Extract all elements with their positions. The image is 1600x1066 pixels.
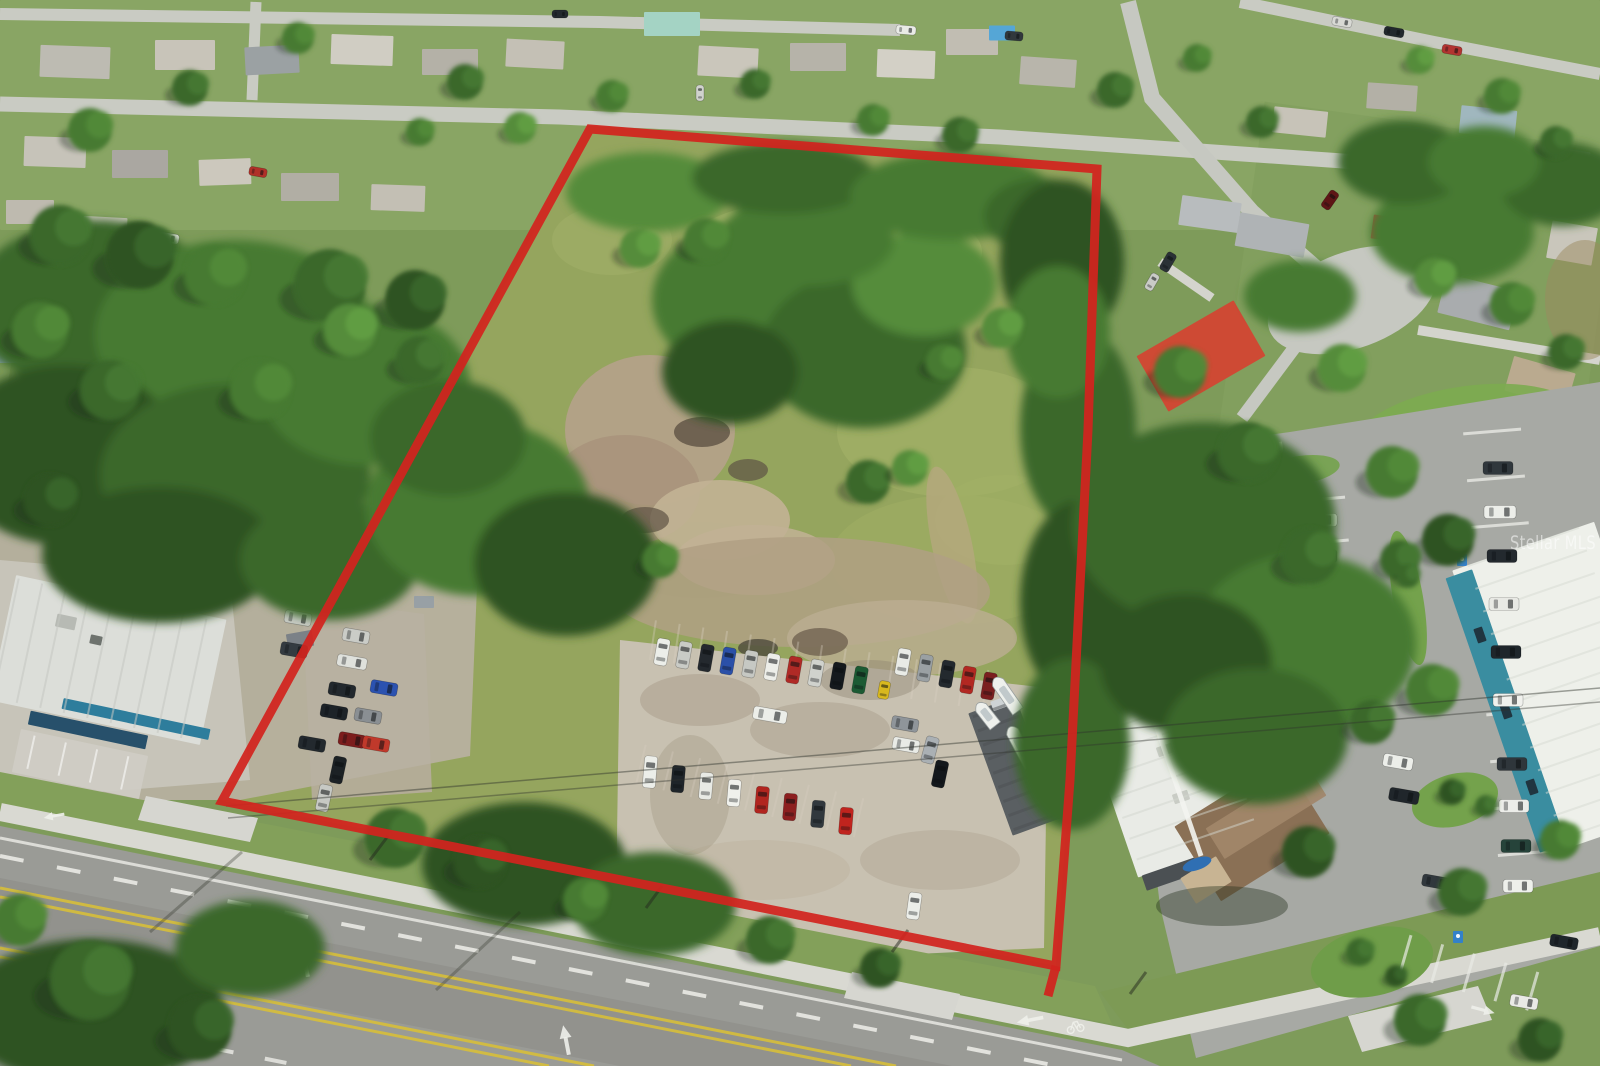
photo-rect xyxy=(155,40,215,70)
car-body xyxy=(810,800,825,828)
car-windshield xyxy=(730,785,739,790)
car xyxy=(642,755,658,788)
tree-highlight xyxy=(581,881,608,908)
photo-rect xyxy=(505,39,564,70)
tree-highlight xyxy=(1305,532,1340,567)
handicap-glyph xyxy=(1456,934,1460,938)
tree-highlight xyxy=(195,1000,235,1040)
tree-highlight xyxy=(907,452,929,474)
car xyxy=(1491,646,1521,659)
photo-blob xyxy=(1244,260,1356,332)
tree-highlight xyxy=(1394,966,1408,980)
car-rear-window xyxy=(698,96,702,98)
tree-highlight xyxy=(1416,997,1448,1029)
tree-highlight xyxy=(416,339,446,369)
photo-blob xyxy=(1156,886,1288,926)
photo-rect xyxy=(112,150,168,178)
car-windshield xyxy=(908,28,912,33)
tree-highlight xyxy=(418,120,435,137)
car-rear-window xyxy=(1492,552,1496,561)
tree-highlight xyxy=(1259,108,1279,128)
car-body xyxy=(642,755,658,788)
photo-rect xyxy=(1366,82,1418,111)
car-body xyxy=(838,807,853,835)
photo-rect xyxy=(281,173,339,201)
tree-highlight xyxy=(877,951,902,976)
photo-blob xyxy=(662,320,798,424)
tree-highlight xyxy=(941,346,963,368)
tree-highlight xyxy=(1499,80,1521,102)
car-rear-window xyxy=(1508,882,1512,891)
car-body xyxy=(1489,598,1519,611)
car-windshield xyxy=(674,771,683,776)
car-windshield xyxy=(1518,802,1523,811)
tree-highlight xyxy=(55,209,92,246)
tree-highlight xyxy=(1563,336,1585,358)
photo-rect xyxy=(39,45,110,79)
photo-rect xyxy=(1019,56,1077,88)
tree-highlight xyxy=(1406,566,1421,581)
car-windshield xyxy=(758,792,767,797)
car xyxy=(1503,880,1533,893)
car-body xyxy=(1491,646,1521,659)
car-rear-window xyxy=(1488,464,1492,473)
car-windshield xyxy=(786,799,795,804)
photo-rect xyxy=(644,12,700,36)
car-rear-window xyxy=(673,784,682,789)
tree-highlight xyxy=(462,66,484,88)
car-body xyxy=(1503,880,1533,893)
car-body xyxy=(1483,462,1513,475)
tree-highlight xyxy=(637,231,662,256)
car-windshield xyxy=(1520,842,1525,851)
tree-highlight xyxy=(346,307,378,339)
tree-highlight xyxy=(1418,48,1435,65)
tree-highlight xyxy=(1112,74,1134,96)
photo-blob xyxy=(860,830,1020,890)
car xyxy=(782,793,797,821)
car xyxy=(754,786,769,814)
car-body xyxy=(1499,800,1529,813)
photo-blob xyxy=(640,674,760,726)
car-body xyxy=(782,793,797,821)
tree-highlight xyxy=(870,106,890,126)
car-rear-window xyxy=(1496,648,1500,657)
photo-rect xyxy=(414,596,434,608)
car-rear-window xyxy=(555,12,557,16)
tree-highlight xyxy=(1195,46,1212,63)
car xyxy=(810,800,825,828)
tree-highlight xyxy=(83,945,133,995)
tree-highlight xyxy=(1508,285,1535,312)
car-windshield xyxy=(1516,760,1521,769)
tree-highlight xyxy=(410,274,447,311)
tree-highlight xyxy=(1484,796,1498,810)
car-windshield xyxy=(1016,34,1019,39)
car-rear-window xyxy=(1502,760,1506,769)
car xyxy=(1497,758,1527,771)
watermark-text: Stellar MLS xyxy=(1510,532,1596,554)
car-windshield xyxy=(1522,882,1527,891)
car-windshield xyxy=(1512,696,1517,705)
tree-highlight xyxy=(1243,426,1280,463)
tree-highlight xyxy=(702,221,729,248)
tree-highlight xyxy=(1458,871,1488,901)
car-body xyxy=(896,25,917,36)
photo-blob xyxy=(792,628,848,656)
photo-blob xyxy=(1428,126,1540,198)
car-body xyxy=(696,85,704,101)
car xyxy=(1499,800,1529,813)
car xyxy=(838,807,853,835)
car-windshield xyxy=(842,813,851,818)
tree-highlight xyxy=(105,364,142,401)
tree-highlight xyxy=(1388,449,1420,481)
tree-highlight xyxy=(1444,517,1476,549)
car xyxy=(1489,598,1519,611)
car xyxy=(1501,840,1531,853)
photo-rect xyxy=(877,49,936,79)
tree-highlight xyxy=(657,544,679,566)
scene xyxy=(0,0,1600,1066)
car-windshield xyxy=(1502,464,1507,473)
car-body xyxy=(1497,758,1527,771)
car-body xyxy=(754,786,769,814)
car xyxy=(726,779,741,807)
car-rear-window xyxy=(841,826,850,831)
tree-highlight xyxy=(1557,823,1582,848)
tree-highlight xyxy=(957,119,979,141)
car-windshield xyxy=(698,88,702,91)
car-rear-window xyxy=(757,805,766,810)
tree-highlight xyxy=(295,24,315,44)
car xyxy=(1005,31,1024,42)
car-body xyxy=(1484,506,1516,519)
car-rear-window xyxy=(1008,33,1011,38)
car-rear-window xyxy=(1504,802,1508,811)
tree-highlight xyxy=(1536,1021,1563,1048)
tree-highlight xyxy=(1428,667,1460,699)
tree-highlight xyxy=(1553,128,1573,148)
photo-rect xyxy=(199,158,252,186)
car-windshield xyxy=(1510,648,1515,657)
tree-highlight xyxy=(752,71,771,90)
car-body xyxy=(726,779,741,807)
car-rear-window xyxy=(899,27,902,32)
car-body xyxy=(1005,31,1024,42)
tree-highlight xyxy=(210,249,247,286)
tree-highlight xyxy=(1304,829,1336,861)
car-rear-window xyxy=(1506,842,1510,851)
car-windshield xyxy=(814,806,823,811)
tree-highlight xyxy=(1432,261,1457,286)
tree-highlight xyxy=(134,225,176,267)
tree-highlight xyxy=(255,364,292,401)
car-body xyxy=(552,10,568,18)
car-rear-window xyxy=(813,819,822,824)
tree-highlight xyxy=(1397,543,1422,568)
car xyxy=(552,10,568,18)
photo-blob xyxy=(175,900,325,996)
tree-highlight xyxy=(16,897,48,929)
tree-highlight xyxy=(517,114,537,134)
tree-highlight xyxy=(1176,349,1208,381)
car-rear-window xyxy=(729,798,738,803)
tree-highlight xyxy=(1358,940,1375,957)
car xyxy=(896,25,917,36)
car-rear-window xyxy=(1489,508,1493,517)
photo-blob xyxy=(650,735,730,855)
car-body xyxy=(1501,840,1531,853)
tree-highlight xyxy=(1450,781,1466,797)
car-rear-window xyxy=(785,812,794,817)
aerial-listing-photo: Stellar MLS xyxy=(0,0,1600,1066)
car-body xyxy=(698,772,713,800)
car xyxy=(696,85,704,101)
tree-highlight xyxy=(46,477,78,509)
photo-rect xyxy=(371,184,426,212)
car-windshield xyxy=(646,762,655,768)
photo-blob xyxy=(728,459,768,481)
tree-highlight xyxy=(324,254,369,299)
tree-highlight xyxy=(766,919,796,949)
car-rear-window xyxy=(701,791,710,796)
car-rear-window xyxy=(1494,600,1498,609)
car-windshield xyxy=(562,12,565,16)
tree-highlight xyxy=(999,311,1024,336)
aerial-photo-canvas: Stellar MLS xyxy=(0,0,1600,1066)
car-windshield xyxy=(1508,600,1513,609)
tree-highlight xyxy=(35,306,70,341)
car xyxy=(1483,462,1513,475)
tree-highlight xyxy=(609,82,629,102)
photo-blob xyxy=(474,492,658,636)
tree-highlight xyxy=(86,111,113,138)
car xyxy=(1484,506,1516,519)
tree-highlight xyxy=(1338,347,1368,377)
car xyxy=(698,772,713,800)
photo-rect xyxy=(790,43,846,71)
photo-rect xyxy=(330,34,393,66)
tree-highlight xyxy=(187,72,209,94)
car-windshield xyxy=(1504,508,1509,517)
